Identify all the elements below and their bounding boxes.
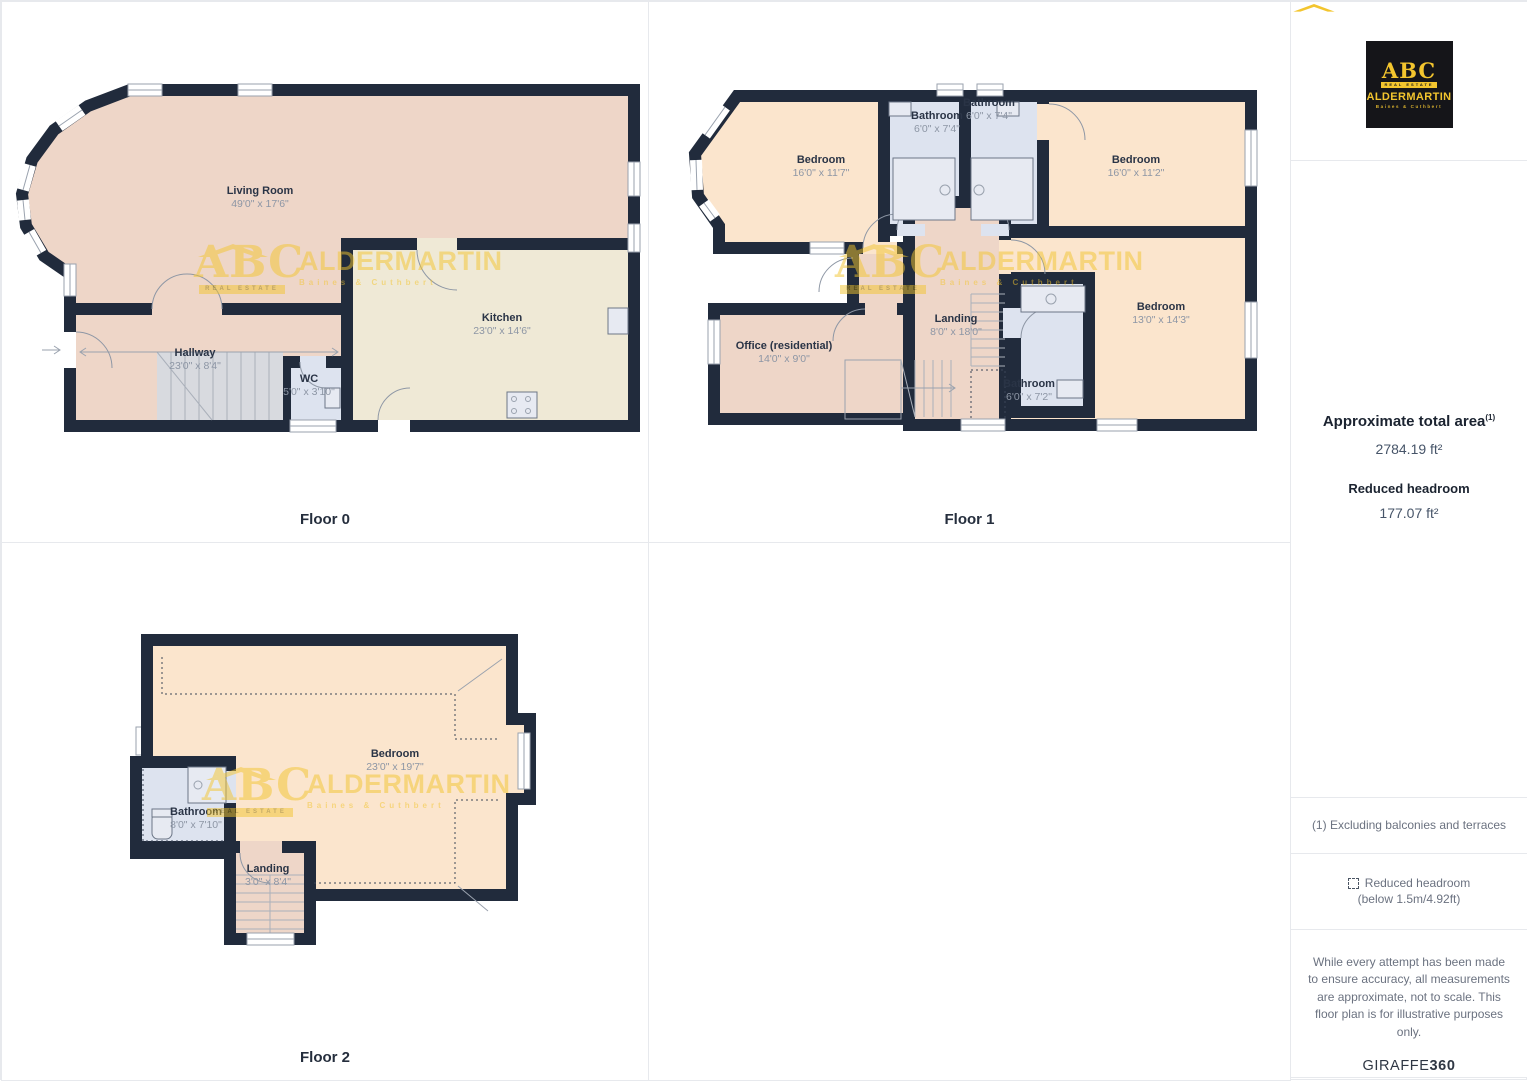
total-area-value: 2784.19 ft² xyxy=(1291,441,1527,457)
room-label: Bedroom xyxy=(797,154,846,166)
room-label: Bathroom xyxy=(963,97,1015,109)
room-dims: 23'0" x 14'6" xyxy=(473,325,531,337)
floorplan-floor1: Bedroom 16'0" x 11'7" Bathroom 6'0" x 7'… xyxy=(649,2,1292,544)
room-label: Living Room xyxy=(227,185,294,197)
room-dims: 6'0" x 7'4" xyxy=(966,110,1012,122)
room-label: Bathroom xyxy=(170,806,222,818)
area-summary-section: Approximate total area(1) 2784.19 ft² Re… xyxy=(1291,161,1527,798)
agency-logo: ABC REAL ESTATE ALDERMARTIN Baines & Cut… xyxy=(1366,41,1453,128)
footnote-section: (1) Excluding balconies and terraces xyxy=(1291,798,1527,854)
room-label: Kitchen xyxy=(482,312,523,324)
floorplan-floor2: Bedroom 23'0" x 19'7" Bathroom 8'0" x 7'… xyxy=(2,543,650,1082)
room-dims: 14'0" x 9'0" xyxy=(758,353,810,365)
panel-empty xyxy=(648,542,1291,1081)
total-area-title: Approximate total area(1) xyxy=(1291,413,1527,430)
room-dims: 13'0" x 14'3" xyxy=(1132,314,1190,326)
room-label: Bathroom xyxy=(1003,378,1055,390)
room-dims: 6'0" x 7'4" xyxy=(914,123,960,135)
room-dims: 23'0" x 8'4" xyxy=(169,360,221,372)
logo-name: ALDERMARTIN xyxy=(1366,91,1451,103)
room-dims: 6'0" x 7'2" xyxy=(1006,391,1052,403)
floor-title-2: Floor 2 xyxy=(2,1049,648,1066)
room-office xyxy=(714,309,909,419)
logo-roof-icon xyxy=(1291,2,1337,13)
room-label: Bedroom xyxy=(1137,301,1186,313)
floorplan-document: Living Room 49'0" x 17'6" Kitchen 23'0" … xyxy=(0,0,1527,1080)
reduced-headroom-value: 177.07 ft² xyxy=(1291,505,1527,521)
disclaimer-section: While every attempt has been made to ens… xyxy=(1291,930,1527,1077)
reduced-headroom-icon xyxy=(1348,878,1359,889)
legend-section: Reduced headroom (below 1.5m/4.92ft) xyxy=(1291,854,1527,930)
info-sidebar: ABC REAL ESTATE ALDERMARTIN Baines & Cut… xyxy=(1290,1,1527,1078)
room-label: Office (residential) xyxy=(736,340,833,352)
panel-floor2: Bedroom 23'0" x 19'7" Bathroom 8'0" x 7'… xyxy=(1,542,649,1081)
room-dims: 5'0" x 3'10" xyxy=(283,386,335,398)
panel-floor1: Bedroom 16'0" x 11'7" Bathroom 6'0" x 7'… xyxy=(648,1,1291,543)
logo-abc-text: ABC xyxy=(1382,60,1436,81)
room-label: Bathroom xyxy=(911,110,963,122)
room-label: Landing xyxy=(935,313,978,325)
panel-floor0: Living Room 49'0" x 17'6" Kitchen 23'0" … xyxy=(1,1,649,543)
room-dims: 49'0" x 17'6" xyxy=(231,198,289,210)
footnote-marker: (1) xyxy=(1485,413,1495,422)
logo-sub: Baines & Cuthbert xyxy=(1376,104,1442,109)
room-label: Bedroom xyxy=(371,748,420,760)
room-dims: 16'0" x 11'2" xyxy=(1108,167,1165,179)
room-dims: 8'0" x 7'10" xyxy=(170,819,222,831)
brand-number: 360 xyxy=(1430,1058,1456,1074)
agency-logo-section: ABC REAL ESTATE ALDERMARTIN Baines & Cut… xyxy=(1291,2,1527,161)
legend-line1: Reduced headroom xyxy=(1365,875,1470,891)
floorplan-floor0: Living Room 49'0" x 17'6" Kitchen 23'0" … xyxy=(2,2,650,544)
room-label: Bedroom xyxy=(1112,154,1161,166)
floor-title-1: Floor 1 xyxy=(649,511,1290,528)
room-label: Landing xyxy=(247,863,290,875)
room-label: WC xyxy=(300,373,318,385)
room-landing-stub xyxy=(853,248,909,309)
room-dims: 3'0" x 8'4" xyxy=(245,876,291,888)
reduced-headroom-title: Reduced headroom xyxy=(1291,481,1527,496)
room-dims: 16'0" x 11'7" xyxy=(793,167,850,179)
total-area-title-text: Approximate total area xyxy=(1323,413,1486,430)
legend-line2: (below 1.5m/4.92ft) xyxy=(1358,891,1461,907)
disclaimer-text: While every attempt has been made to ens… xyxy=(1307,954,1511,1041)
room-label: Hallway xyxy=(175,347,217,359)
room-dims: 8'0" x 18'0" xyxy=(930,326,982,338)
room-dims: 23'0" x 19'7" xyxy=(366,761,424,773)
floor-title-0: Floor 0 xyxy=(2,511,648,528)
logo-tagline: REAL ESTATE xyxy=(1381,82,1437,88)
brand-name: GIRAFFE xyxy=(1362,1058,1429,1074)
footnote-text: (1) Excluding balconies and terraces xyxy=(1312,818,1506,832)
giraffe360-brand: GIRAFFE360 xyxy=(1307,1056,1511,1077)
